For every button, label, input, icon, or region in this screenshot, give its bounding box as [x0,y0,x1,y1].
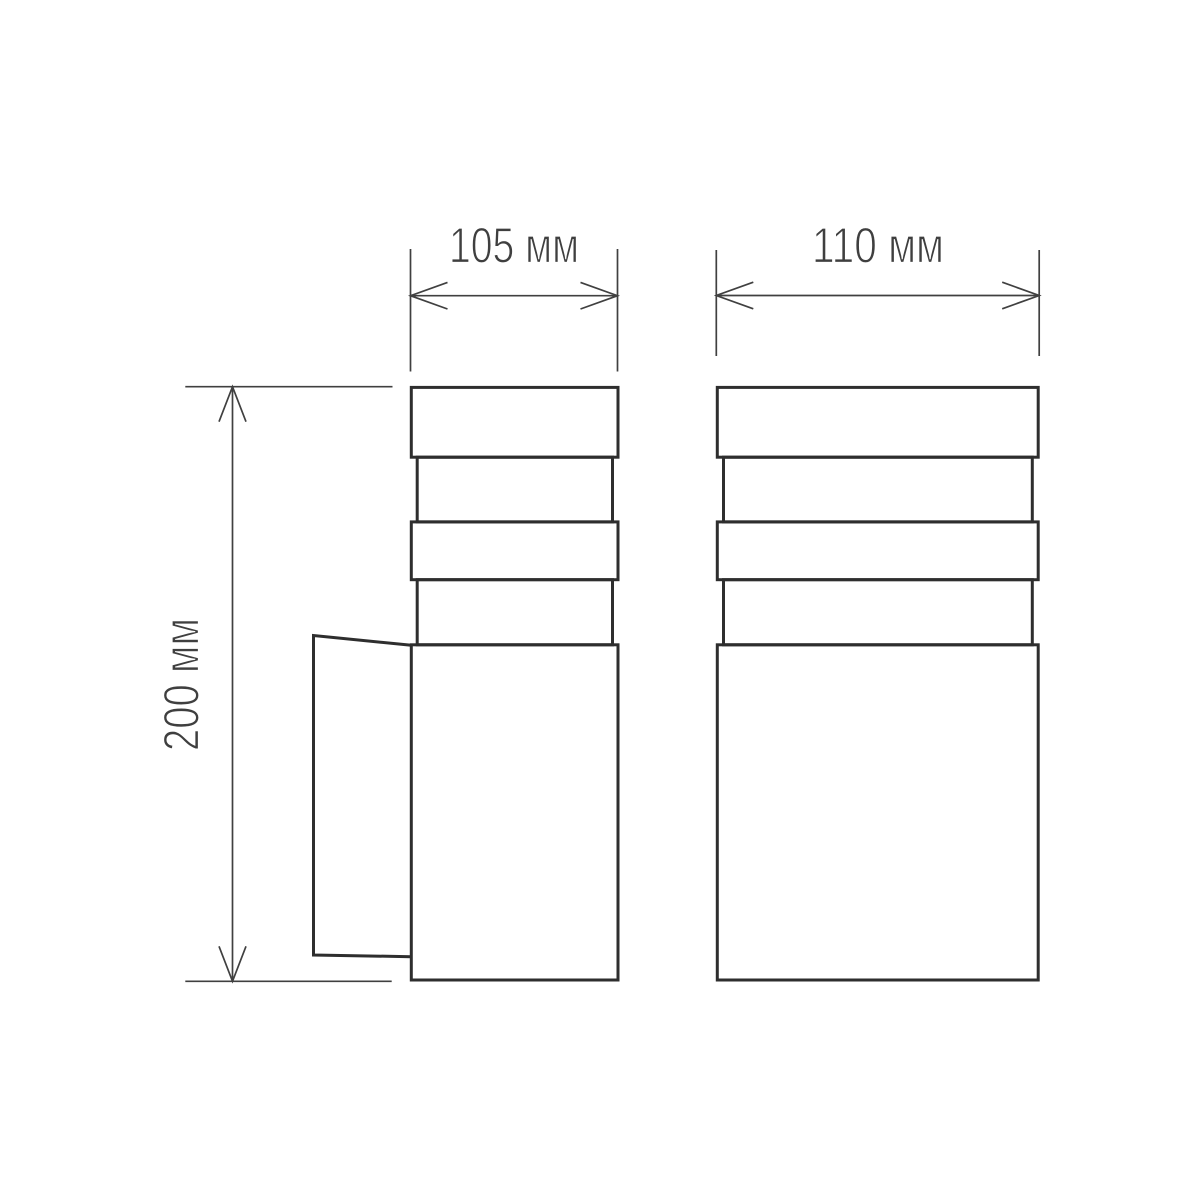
svg-text:200 мм: 200 мм [154,618,210,751]
svg-text:105 мм: 105 мм [449,218,579,274]
svg-text:110 мм: 110 мм [812,218,944,274]
